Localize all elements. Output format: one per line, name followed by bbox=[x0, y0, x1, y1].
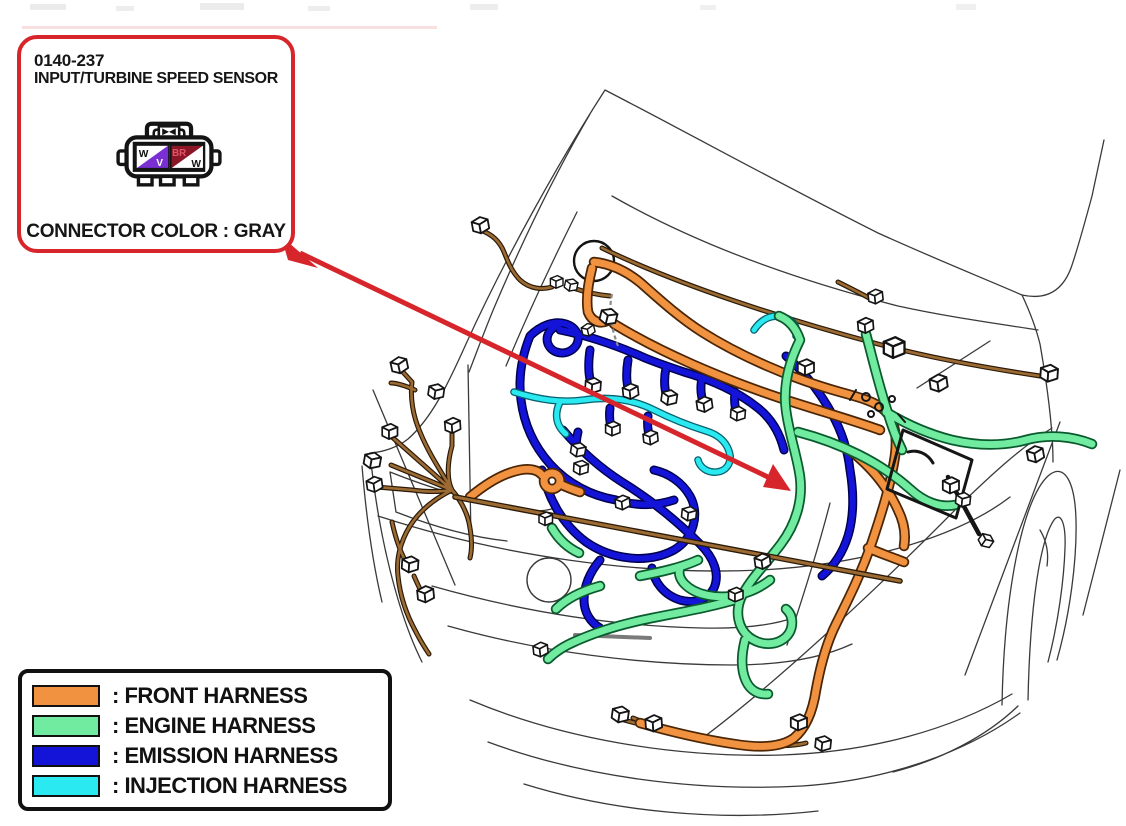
legend-box: : FRONT HARNESS : ENGINE HARNESS : EMISS… bbox=[18, 669, 392, 811]
grille-emblem bbox=[527, 558, 571, 602]
leader-arrowhead bbox=[763, 464, 791, 491]
component-name: INPUT/TURBINE SPEED SENSOR bbox=[34, 70, 278, 88]
callout-box: 0140-237 INPUT/TURBINE SPEED SENSOR W V bbox=[17, 35, 295, 253]
pin-cell-1: W V bbox=[136, 145, 169, 169]
connector-pinout-icon: W V BR W bbox=[113, 115, 225, 197]
connector-code: 0140-237 bbox=[34, 51, 104, 71]
legend-item-engine-harness: : ENGINE HARNESS bbox=[32, 714, 315, 738]
connector-color-label: CONNECTOR COLOR : GRAY bbox=[21, 221, 291, 243]
legend-label: : INJECTION HARNESS bbox=[112, 773, 347, 799]
legend-item-emission-harness: : EMISSION HARNESS bbox=[32, 744, 338, 768]
engine-harness-swatch bbox=[32, 715, 100, 737]
emission-harness-swatch bbox=[32, 745, 100, 767]
injection-harness-swatch bbox=[32, 775, 100, 797]
pin-wire-color: BR bbox=[172, 148, 186, 159]
front-wheel-arch bbox=[1002, 471, 1076, 705]
connector-boxes bbox=[363, 216, 1058, 752]
page-container: 0140-237 INPUT/TURBINE SPEED SENSOR W V bbox=[0, 0, 1126, 826]
front-harness-swatch bbox=[32, 685, 100, 707]
car-body-outline bbox=[362, 90, 1120, 815]
pin-wire-color: V bbox=[156, 158, 163, 169]
pin-wire-color: W bbox=[191, 159, 201, 170]
legend-label: : EMISSION HARNESS bbox=[112, 743, 338, 769]
legend-item-injection-harness: : INJECTION HARNESS bbox=[32, 774, 347, 798]
legend-item-front-harness: : FRONT HARNESS bbox=[32, 684, 307, 708]
legend-label: : ENGINE HARNESS bbox=[112, 713, 315, 739]
legend-label: : FRONT HARNESS bbox=[112, 683, 307, 709]
scan-artifacts bbox=[22, 3, 976, 29]
pin-cell-2: BR W bbox=[171, 145, 204, 170]
pin-wire-color: W bbox=[139, 149, 149, 160]
